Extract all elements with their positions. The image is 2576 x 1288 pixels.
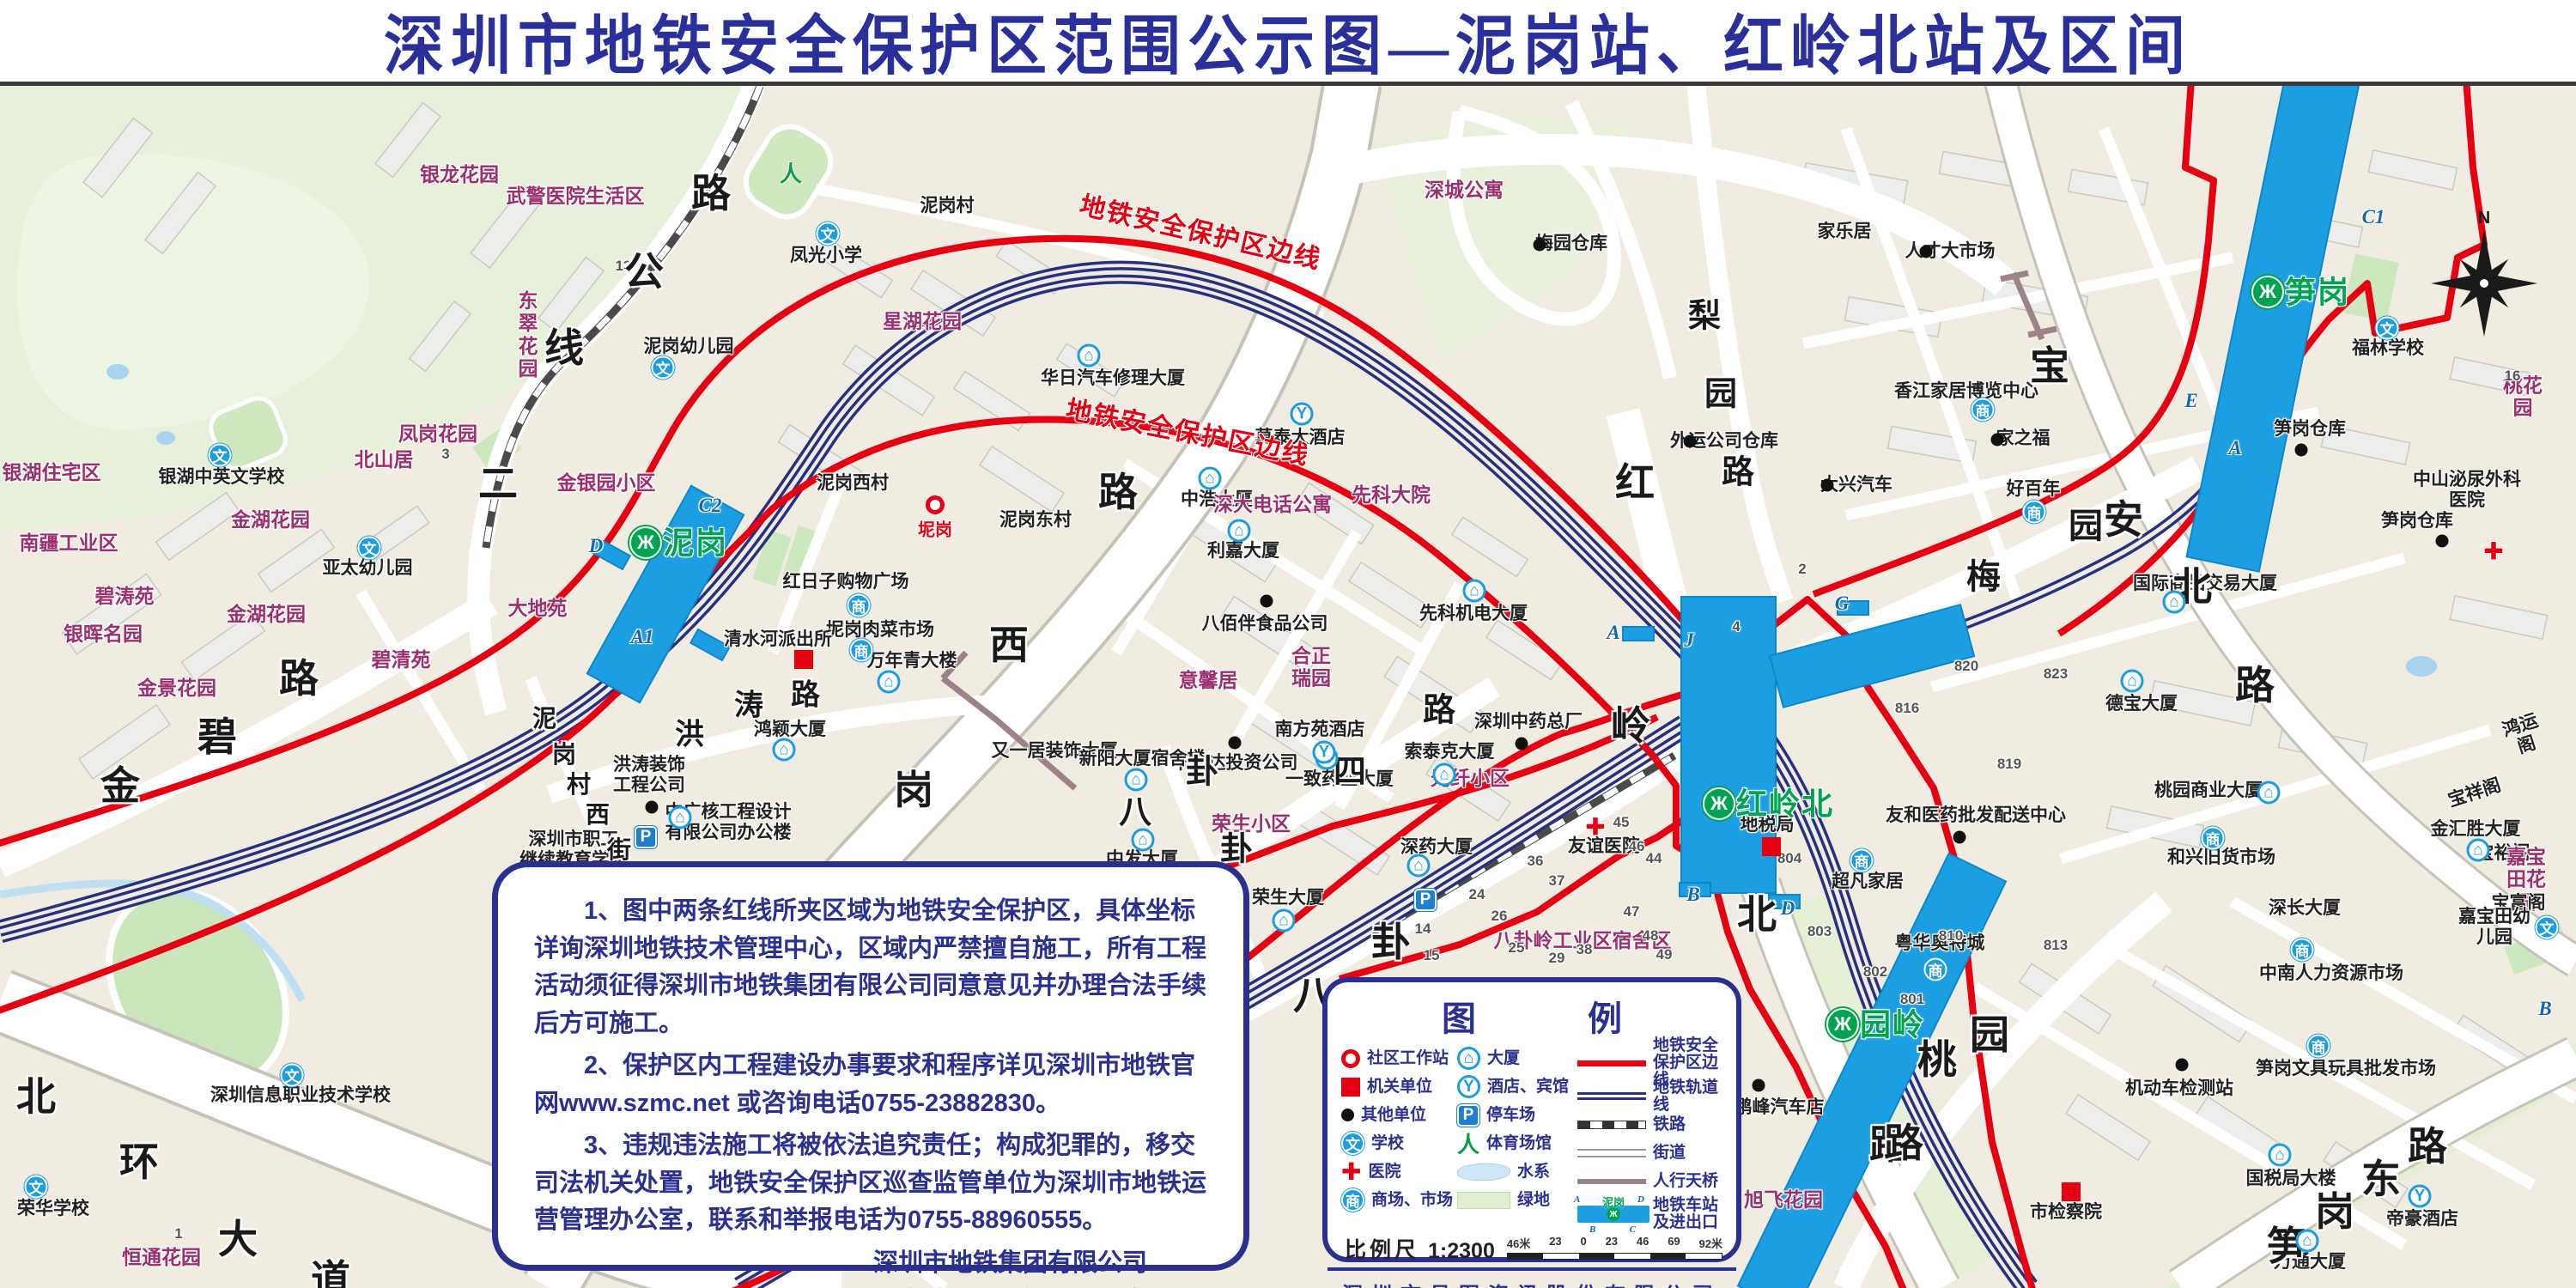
- scale-label: 比例尺: [1345, 1233, 1419, 1264]
- scale-tick: 0: [1581, 1235, 1587, 1251]
- legend-item: 水系: [1457, 1157, 1577, 1186]
- legend-box: 图 例 社区工作站机关单位其他单位文学校✚医院商商场、市场 ⌂大厦Y酒店、宾馆P…: [1322, 977, 1741, 1262]
- legend-item: 人体育场馆: [1457, 1129, 1577, 1157]
- ring-icon: [1341, 1049, 1360, 1068]
- legend-item: 绿地: [1457, 1186, 1577, 1214]
- parking-icon: P: [1457, 1104, 1479, 1127]
- redsq-icon: [1341, 1078, 1360, 1097]
- legend-exit-letter: A: [1574, 1194, 1580, 1205]
- dot-icon: [1341, 1109, 1354, 1121]
- legend-item: ✚医院: [1341, 1157, 1457, 1186]
- legend-item-label: 大厦: [1487, 1050, 1520, 1067]
- legend-item: P停车场: [1457, 1101, 1577, 1129]
- legend-item-label: 人行天桥: [1653, 1173, 1718, 1190]
- scale-value: 1:2300: [1428, 1239, 1495, 1264]
- legend-item: 其他单位: [1341, 1101, 1457, 1129]
- legend-item: 街道: [1577, 1139, 1726, 1167]
- legend-item: Y酒店、宾馆: [1457, 1072, 1577, 1101]
- legend-item-label: 机关单位: [1367, 1078, 1432, 1096]
- legend-item-label: 地铁轨道线: [1653, 1079, 1726, 1114]
- notice-signature: 深圳市地铁集团有限公司深圳市地铁运营管理办公室二〇一七年十二月二十九日: [534, 1245, 1207, 1288]
- poster: N 银龙花园武警医院生活区东 翠 花 园凤岗花园金银园小区银湖住宅区南疆工业区银…: [0, 0, 2576, 1288]
- legend-column-1: 社区工作站机关单位其他单位文学校✚医院商商场、市场: [1341, 1044, 1457, 1233]
- market-icon: 商: [1341, 1188, 1364, 1212]
- legend-columns: 社区工作站机关单位其他单位文学校✚医院商商场、市场 ⌂大厦Y酒店、宾馆P停车场人…: [1327, 1042, 1736, 1233]
- track-sample: [1577, 1092, 1646, 1100]
- redline-sample: [1577, 1060, 1646, 1066]
- signature-line: 深圳市地铁运营管理办公室: [534, 1284, 1207, 1288]
- legend-item: 地铁轨道线: [1577, 1082, 1726, 1110]
- scale-ticks: 46米23023466992米: [1507, 1235, 1722, 1251]
- svg-text:N: N: [2478, 209, 2490, 228]
- notice-paragraph: 1、图中两条红线所夹区域为地铁安全保护区，具体坐标详询深圳地铁技术管理中心，区域…: [534, 893, 1207, 1042]
- page-title: 深圳市地铁安全保护区范围公示图—泥岗站、红岭北站及区间: [384, 0, 2192, 88]
- legend-column-3: 地铁安全 保护区边线地铁轨道线铁路街道人行天桥泥岗ЖADBC地铁车站 及进出口: [1577, 1044, 1726, 1233]
- scale-tick: 46: [1637, 1235, 1649, 1251]
- legend-item: 机关单位: [1341, 1072, 1457, 1101]
- pond: [2406, 656, 2437, 677]
- notice-paragraph: 2、保护区内工程建设办事要求和程序详见深圳市地铁官网www.szmc.net 或…: [534, 1048, 1207, 1122]
- legend-exit-letter: D: [1637, 1194, 1644, 1205]
- hotel-icon: Y: [1457, 1075, 1480, 1098]
- scale-tick: 46米: [1507, 1235, 1530, 1251]
- legend-exit-letter: C: [1630, 1224, 1636, 1235]
- school-icon: 文: [1341, 1132, 1364, 1155]
- legend-exit-letter: B: [1589, 1224, 1595, 1235]
- notice-box: 1、图中两条红线所夹区域为地铁安全保护区，具体坐标详询深圳地铁技术管理中心，区域…: [492, 861, 1249, 1271]
- pond: [156, 431, 175, 445]
- legend-item: 文学校: [1341, 1129, 1457, 1157]
- legend-title: 图 例: [1327, 982, 1736, 1042]
- legend-item: 人行天桥: [1577, 1167, 1726, 1195]
- legend-item-label: 商场、市场: [1371, 1192, 1453, 1209]
- notice-paragraph: 3、违规违法施工将被依法追究责任；构成犯罪的，移交司法机关处置，地铁安全保护区巡…: [534, 1127, 1207, 1240]
- legend-item-label: 学校: [1371, 1135, 1404, 1152]
- run-icon: 人: [1457, 1127, 1479, 1159]
- legend-item-label: 其他单位: [1361, 1107, 1426, 1124]
- legend-item: 铁路: [1577, 1110, 1726, 1139]
- legend-credit: 深圳市易图资讯股份有限公司 编 制: [1327, 1267, 1736, 1288]
- scale-bar: 46米23023466992米: [1507, 1235, 1722, 1264]
- scale-tick: 23: [1549, 1235, 1561, 1251]
- legend-item: 社区工作站: [1341, 1044, 1457, 1072]
- rail-sample: [1577, 1121, 1646, 1129]
- legend-item: 商商场、市场: [1341, 1186, 1457, 1214]
- scale-tick: 69: [1668, 1235, 1680, 1251]
- legend-item-label: 体育场馆: [1486, 1135, 1552, 1152]
- legend-column-2: ⌂大厦Y酒店、宾馆P停车场人体育场馆水系绿地: [1457, 1044, 1577, 1233]
- map-canvas: N: [0, 0, 2576, 1288]
- notice-paragraphs: 1、图中两条红线所夹区域为地铁安全保护区，具体坐标详询深圳地铁技术管理中心，区域…: [534, 893, 1207, 1240]
- scale-segments: [1507, 1253, 1722, 1260]
- legend-item-label: 停车场: [1486, 1107, 1535, 1124]
- legend-item: 地铁安全 保护区边线: [1577, 1044, 1726, 1082]
- street-sample: [1577, 1149, 1646, 1157]
- legend-item-label: 医院: [1368, 1163, 1400, 1181]
- bridge-sample: [1577, 1179, 1646, 1184]
- green-sample: [1457, 1192, 1510, 1209]
- title-bar: 深圳市地铁安全保护区范围公示图—泥岗站、红岭北站及区间: [0, 0, 2576, 86]
- signature-line: 深圳市地铁集团有限公司: [534, 1245, 1207, 1283]
- legend-item-label: 酒店、宾馆: [1487, 1078, 1569, 1096]
- legend-item-label: 水系: [1517, 1163, 1550, 1181]
- legend-item: ⌂大厦: [1457, 1044, 1577, 1072]
- legend-item-label: 社区工作站: [1367, 1050, 1449, 1067]
- water-sample: [1457, 1163, 1510, 1181]
- legend-item-label: 绿地: [1517, 1192, 1550, 1209]
- bldg-icon: ⌂: [1457, 1047, 1480, 1070]
- scale-tick: 92米: [1699, 1235, 1722, 1251]
- legend-item-label: 地铁车站 及进出口: [1653, 1197, 1718, 1231]
- station-sample: 泥岗ЖADBC: [1577, 1206, 1646, 1223]
- legend-scale-row: 比例尺 1:2300 46米23023466992米: [1327, 1233, 1736, 1267]
- legend-item-label: 街道: [1653, 1145, 1686, 1162]
- pond: [106, 364, 129, 380]
- legend-item: 泥岗ЖADBC地铁车站 及进出口: [1577, 1195, 1726, 1233]
- legend-item-label: 铁路: [1653, 1116, 1686, 1133]
- cross-icon: ✚: [1341, 1157, 1361, 1186]
- scale-tick: 23: [1606, 1235, 1618, 1251]
